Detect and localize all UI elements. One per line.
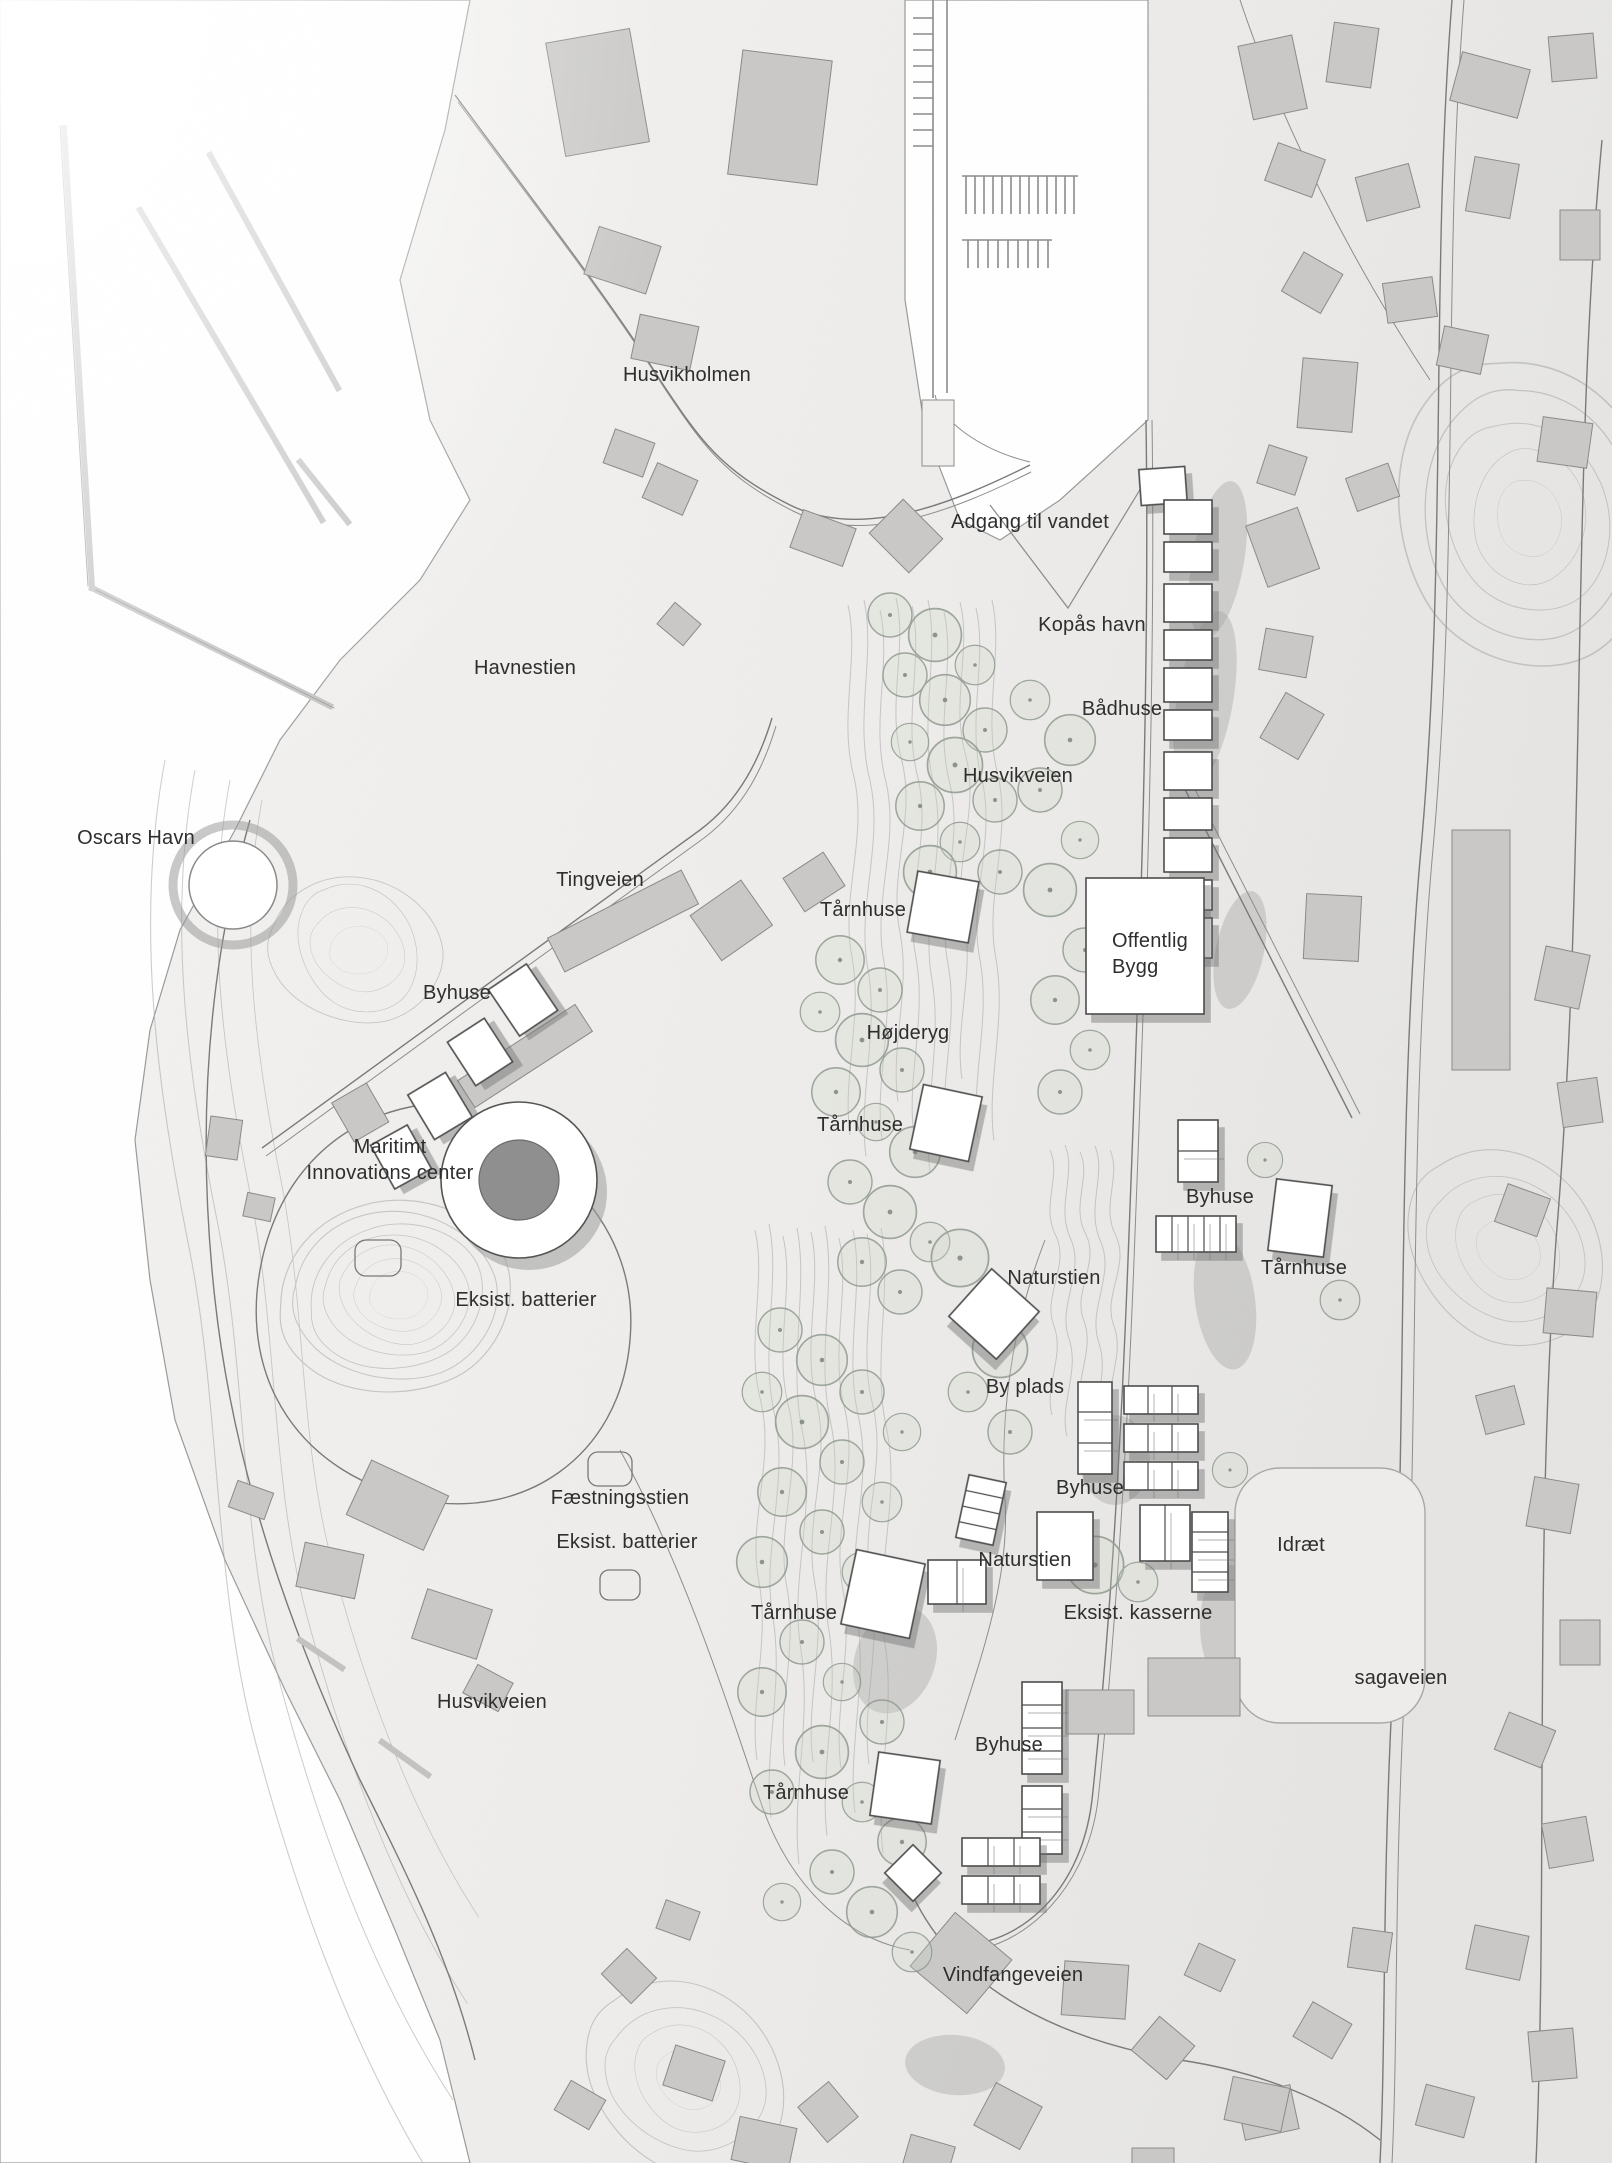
tower-house — [910, 1084, 982, 1161]
tower-house — [1268, 1179, 1332, 1257]
paper-grain — [0, 0, 1612, 2163]
tower-house — [870, 1752, 940, 1824]
tower-house — [907, 871, 979, 943]
site-plan-map — [0, 0, 1612, 2163]
offentlig-bygg-building — [1086, 878, 1204, 1014]
site-plan: Husvikholmen Adgang til vandet Kopås hav… — [0, 0, 1612, 2163]
oscars-havn-basin — [173, 825, 293, 945]
tower-house — [841, 1550, 925, 1639]
sports-field — [1235, 1468, 1425, 1723]
